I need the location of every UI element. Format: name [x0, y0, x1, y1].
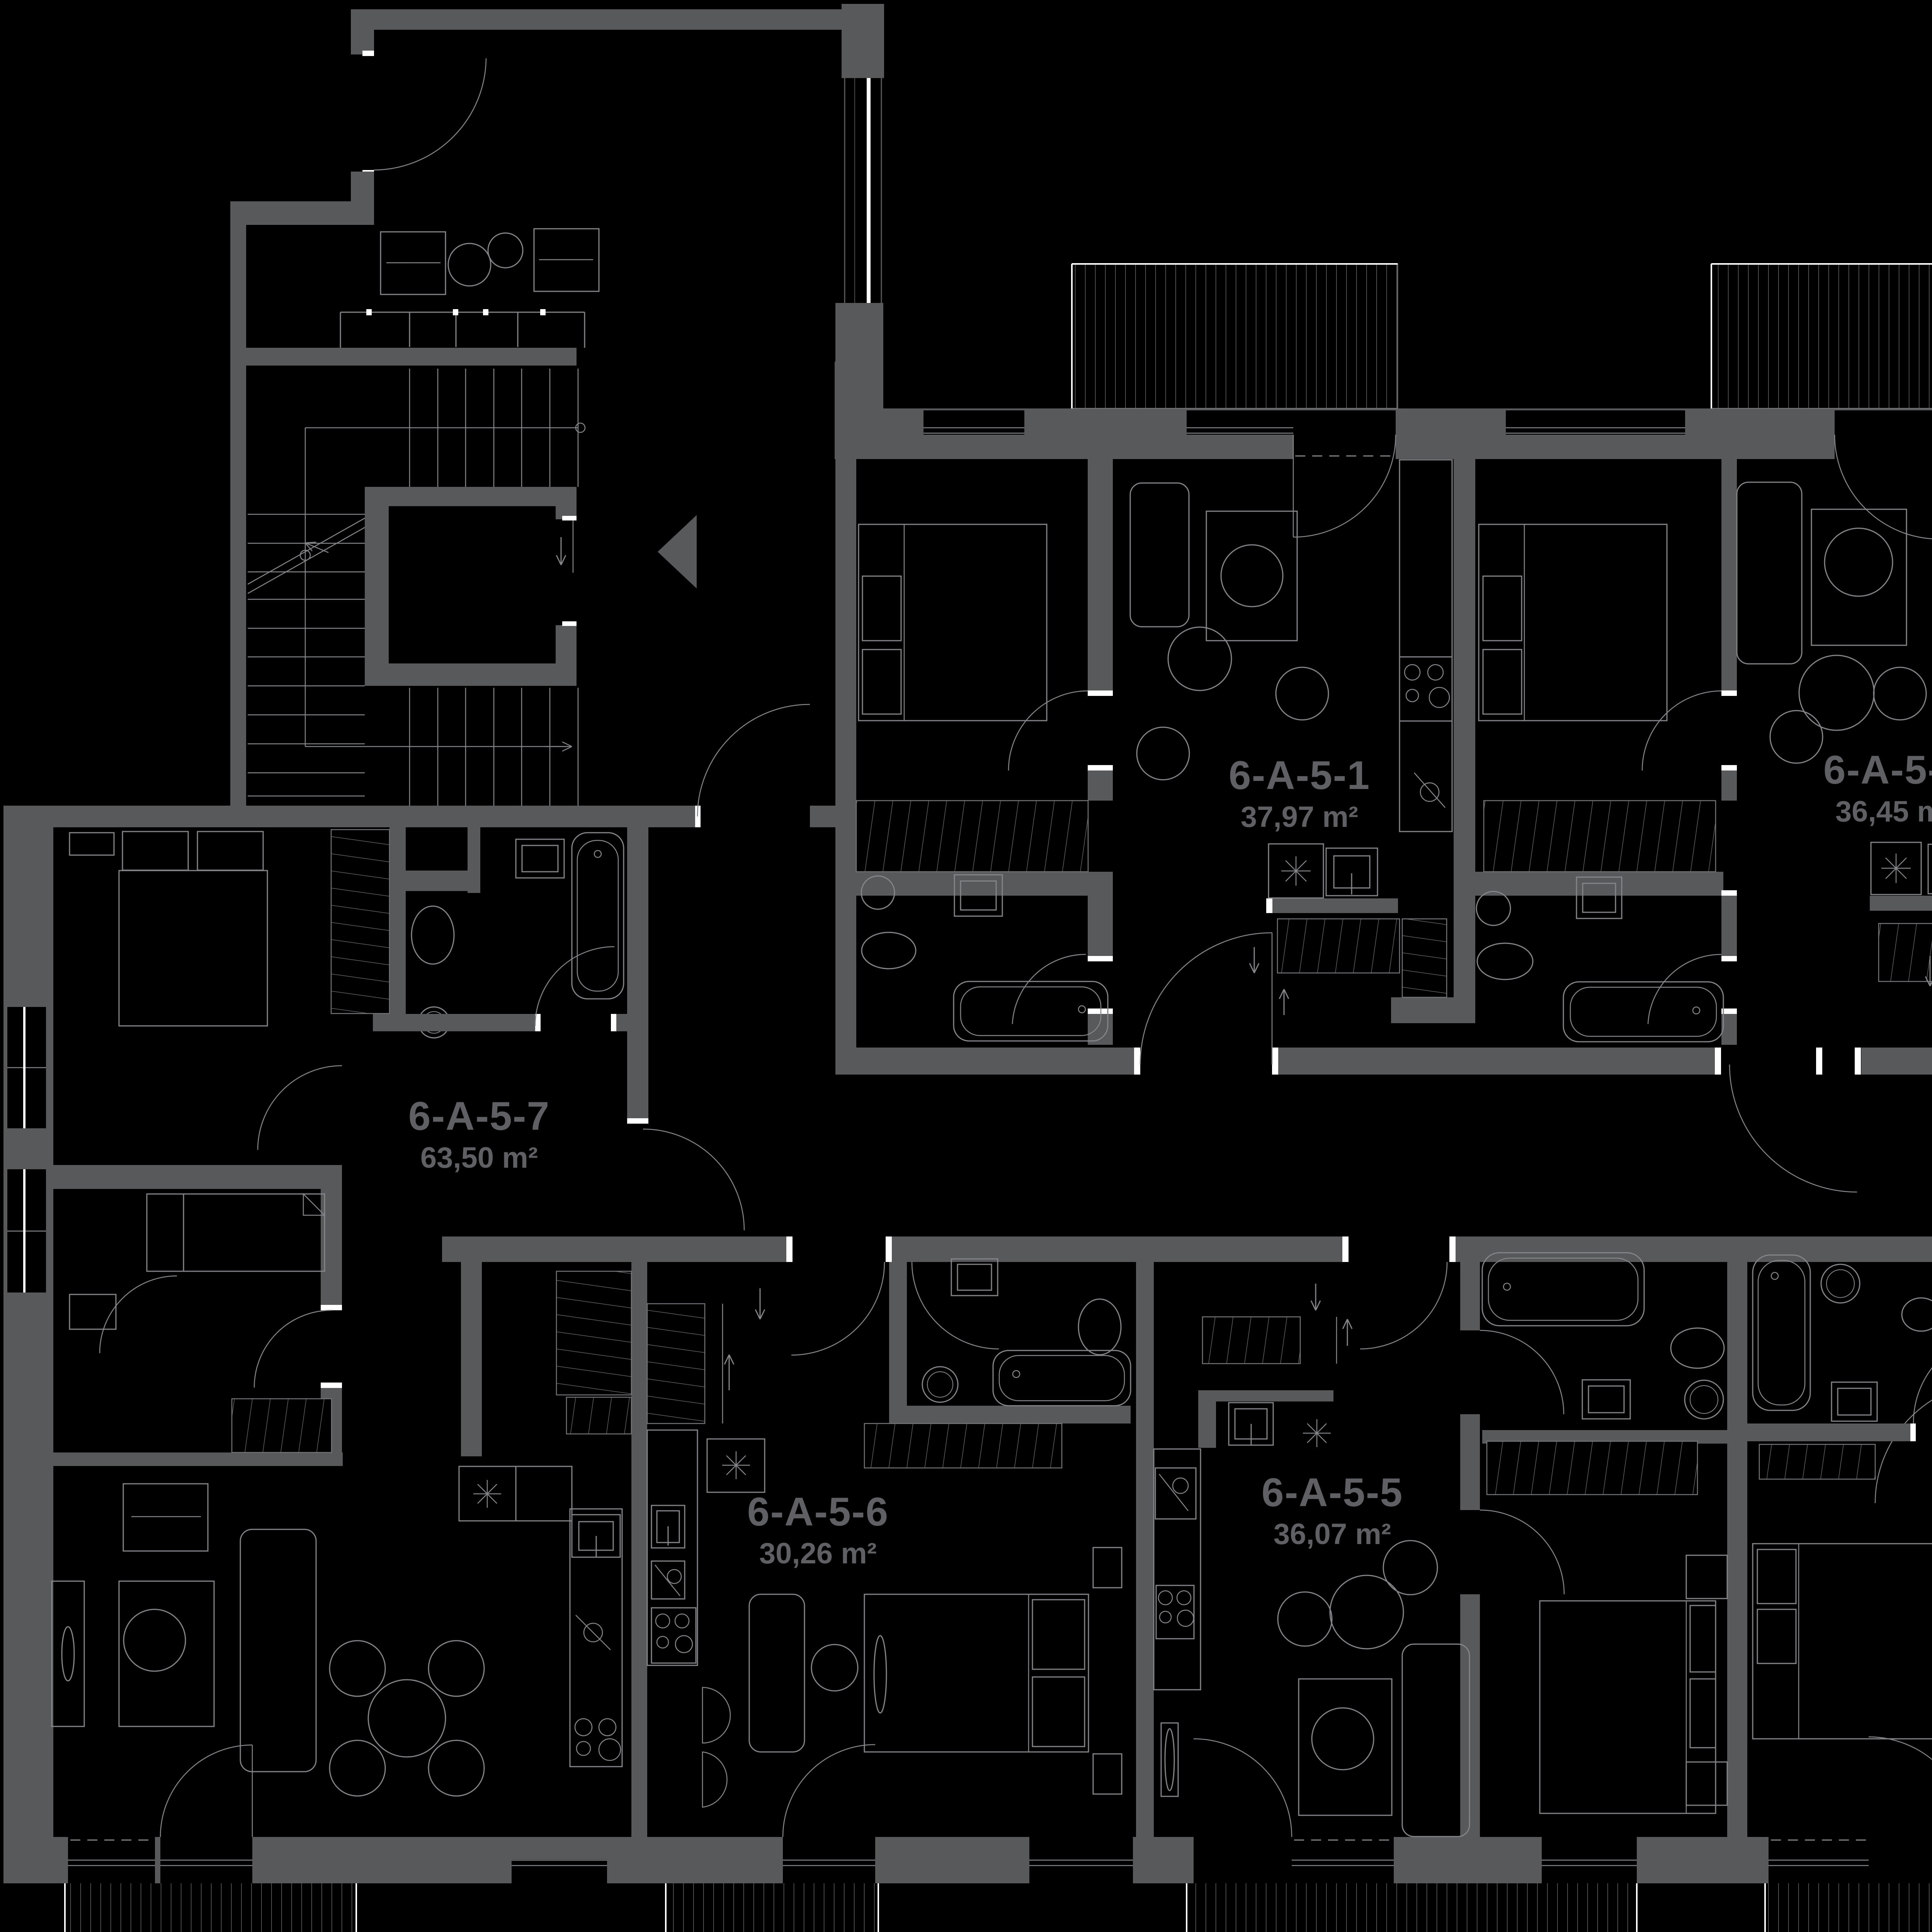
svg-text:30,26 m²: 30,26 m² [759, 1537, 877, 1570]
svg-text:6-A-5-7: 6-A-5-7 [408, 1094, 550, 1139]
svg-text:36,45 m²: 36,45 m² [1835, 795, 1932, 828]
svg-text:6-A-5-6: 6-A-5-6 [747, 1490, 889, 1534]
svg-text:6-A-5-2: 6-A-5-2 [1823, 748, 1932, 793]
svg-text:6-A-5-5: 6-A-5-5 [1262, 1470, 1403, 1515]
svg-text:6-A-5-1: 6-A-5-1 [1229, 753, 1371, 798]
svg-text:36,07 m²: 36,07 m² [1274, 1518, 1391, 1551]
svg-text:63,50 m²: 63,50 m² [420, 1141, 538, 1174]
svg-text:37,97 m²: 37,97 m² [1241, 801, 1358, 833]
